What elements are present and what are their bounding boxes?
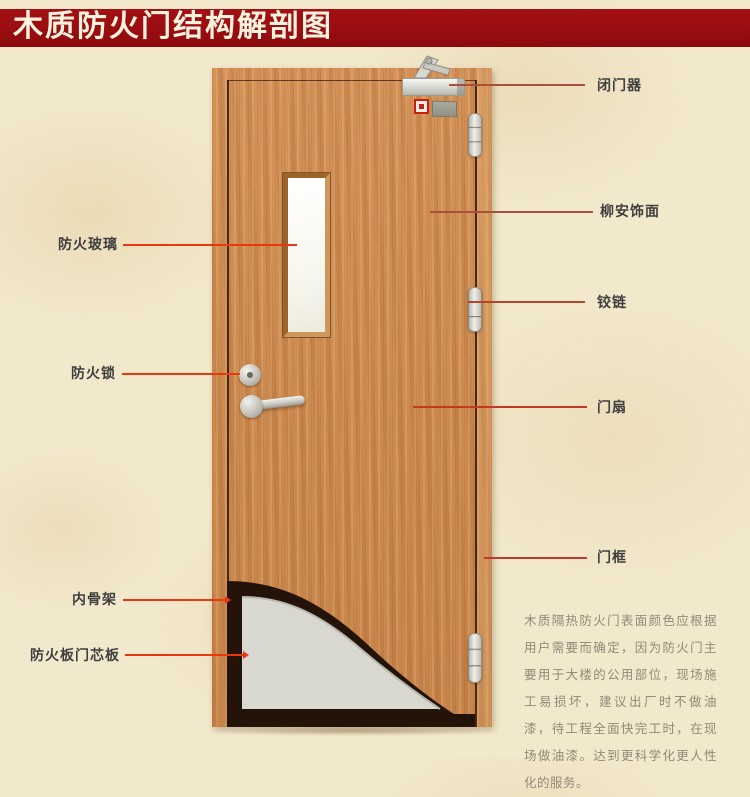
label-door-frame: 门框 <box>597 550 627 565</box>
page-title: 木质防火门结构解剖图 <box>0 10 333 46</box>
leader-line-fire-lock <box>122 373 240 375</box>
core-board-shape <box>242 597 440 709</box>
label-core-board: 防火板门芯板 <box>30 648 120 663</box>
leader-line-door-leaf <box>413 406 587 408</box>
leader-line-hinge <box>468 301 585 303</box>
title-banner: 木质防火门结构解剖图 <box>0 9 750 47</box>
label-inner-skeleton: 内骨架 <box>72 592 117 607</box>
leader-line-door-closer <box>449 84 585 86</box>
note-paragraph: 木质隔热防火门表面颜色应根据用户需要而确定，因为防火门主要用于大楼的公用部位，现… <box>524 608 717 797</box>
leader-line-inner-skeleton <box>123 599 229 601</box>
label-fire-glass: 防火玻璃 <box>58 237 118 252</box>
label-door-leaf: 门扇 <box>597 400 627 415</box>
leader-line-fire-glass <box>123 244 297 246</box>
label-door-closer: 闭门器 <box>597 78 642 93</box>
label-lauan-veneer: 柳安饰面 <box>600 204 660 219</box>
page-background: { "title": "木质防火门结构解剖图", "labels": { "le… <box>0 0 750 757</box>
label-fire-lock: 防火锁 <box>71 366 116 381</box>
door-bottom-shadow <box>204 726 502 736</box>
leader-line-core-board <box>125 654 247 656</box>
leader-line-lauan-veneer <box>430 211 593 213</box>
cutaway-graphic <box>212 68 492 727</box>
door-illustration <box>212 68 492 727</box>
label-hinge: 铰链 <box>597 295 627 310</box>
leader-line-door-frame <box>484 557 587 559</box>
